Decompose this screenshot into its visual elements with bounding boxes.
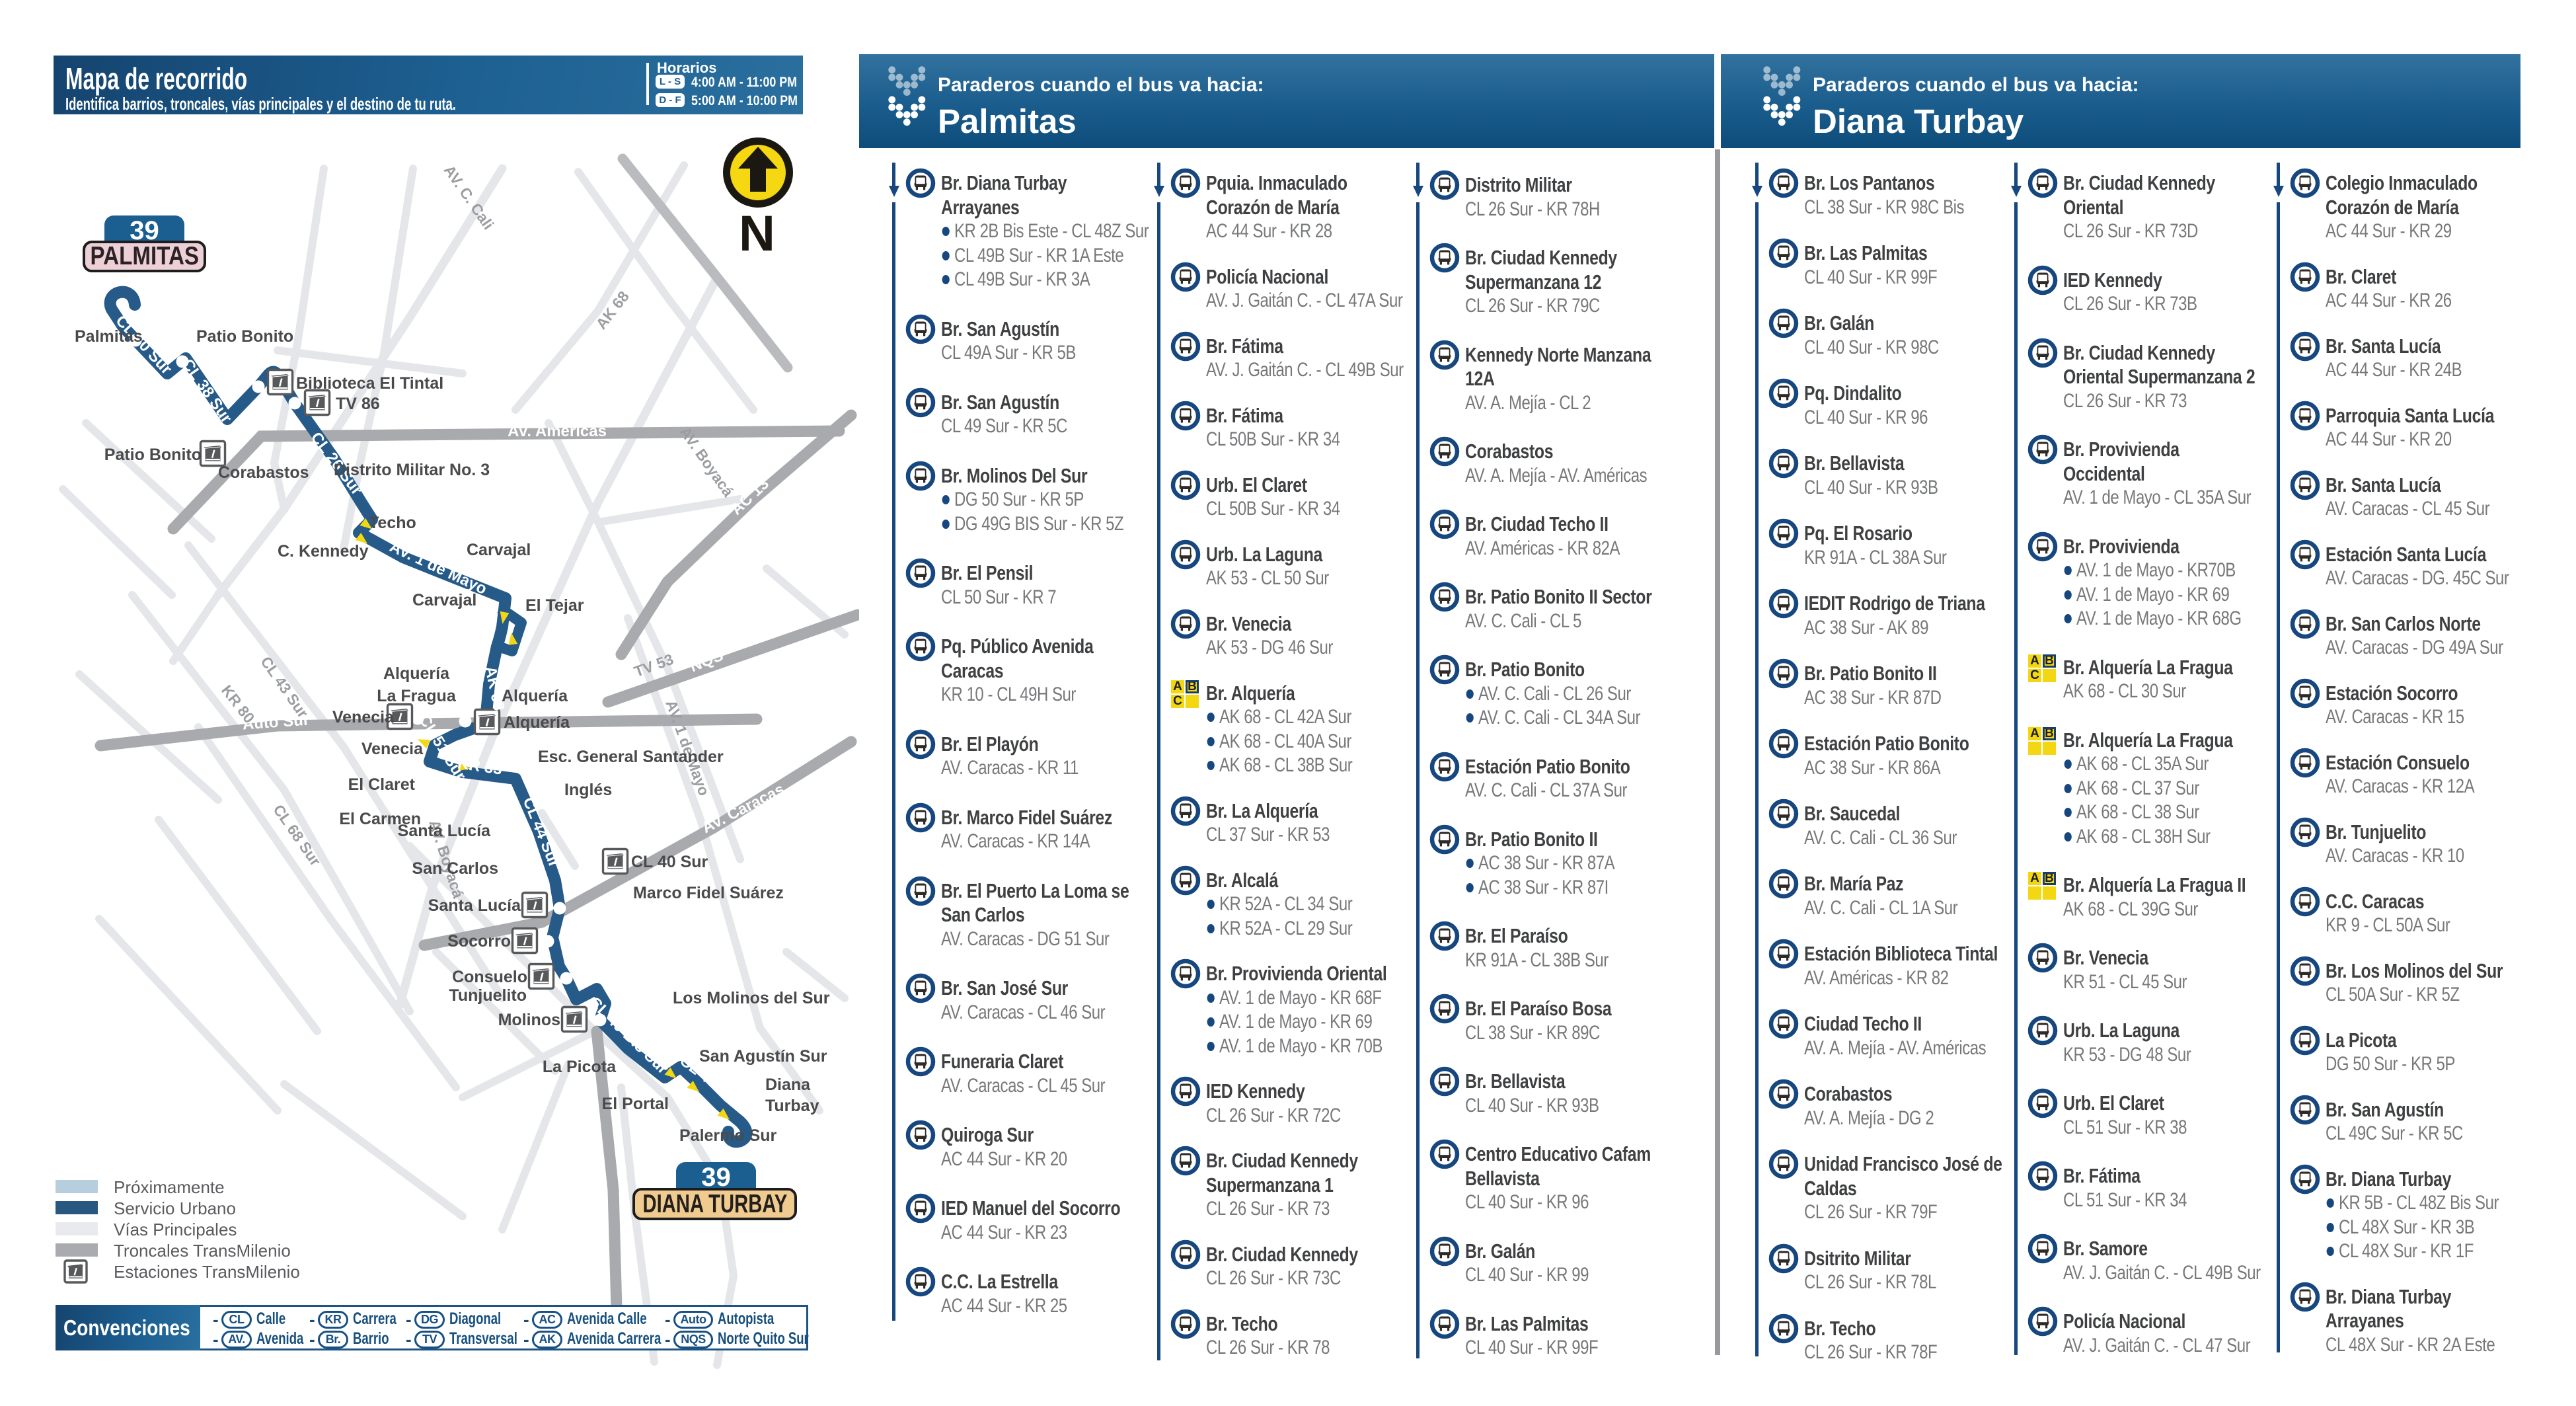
svg-text:La Fragua: La Fragua: [377, 687, 457, 705]
svg-text:Tunjuelito: Tunjuelito: [449, 986, 527, 1005]
svg-text:El Claret: El Claret: [348, 775, 416, 794]
svg-text:Distrito Militar No. 3: Distrito Militar No. 3: [334, 461, 490, 479]
svg-text:CL 43 Sur: CL 43 Sur: [257, 653, 312, 721]
svg-text:Marco Fidel Suárez: Marco Fidel Suárez: [633, 884, 784, 902]
svg-text:Corabastos: Corabastos: [218, 463, 309, 482]
svg-text:Socorro: Socorro: [447, 932, 511, 951]
svg-text:C. Kennedy: C. Kennedy: [278, 542, 369, 561]
svg-text:El Portal: El Portal: [602, 1095, 669, 1113]
svg-text:Turbay: Turbay: [765, 1097, 819, 1115]
svg-text:Santa Lucía: Santa Lucía: [428, 896, 521, 915]
svg-text:El Tejar: El Tejar: [525, 596, 584, 615]
svg-text:Consuelo: Consuelo: [452, 968, 527, 986]
svg-text:Alquería: Alquería: [504, 713, 570, 732]
svg-text:AV. Américas: AV. Américas: [508, 422, 607, 440]
svg-text:Carvajal: Carvajal: [467, 541, 531, 559]
svg-text:Los Molinos del Sur: Los Molinos del Sur: [673, 989, 830, 1007]
svg-text:La Picota: La Picota: [543, 1058, 617, 1076]
svg-text:Patio Bonito: Patio Bonito: [196, 327, 293, 346]
svg-text:Venecia: Venecia: [361, 740, 424, 758]
svg-text:Alquería: Alquería: [502, 687, 568, 705]
svg-text:Biblioteca El Tintal: Biblioteca El Tintal: [296, 374, 443, 393]
svg-text:Palermo Sur: Palermo Sur: [679, 1126, 777, 1145]
svg-text:Venecia: Venecia: [332, 708, 395, 726]
svg-text:TV 86: TV 86: [336, 395, 380, 413]
svg-text:Diana: Diana: [765, 1075, 811, 1094]
svg-text:Esc. General Santander: Esc. General Santander: [538, 748, 724, 766]
svg-text:CL 38 Sur: CL 38 Sur: [178, 356, 235, 426]
svg-text:Molinos: Molinos: [498, 1011, 560, 1029]
svg-text:San Carlos: San Carlos: [412, 859, 498, 878]
svg-text:Santa Lucía: Santa Lucía: [398, 822, 491, 840]
svg-text:KR 80: KR 80: [218, 682, 258, 726]
svg-text:Techo: Techo: [369, 514, 416, 532]
svg-text:CL 40 Sur: CL 40 Sur: [631, 853, 708, 871]
svg-text:Carvajal: Carvajal: [412, 591, 476, 609]
svg-text:Patio Bonito: Patio Bonito: [104, 446, 202, 464]
svg-text:Alquería: Alquería: [383, 664, 450, 683]
svg-text:Inglés: Inglés: [564, 781, 612, 799]
svg-text:San Agustín Sur: San Agustín Sur: [699, 1047, 827, 1066]
svg-text:Palmitas: Palmitas: [75, 327, 143, 346]
